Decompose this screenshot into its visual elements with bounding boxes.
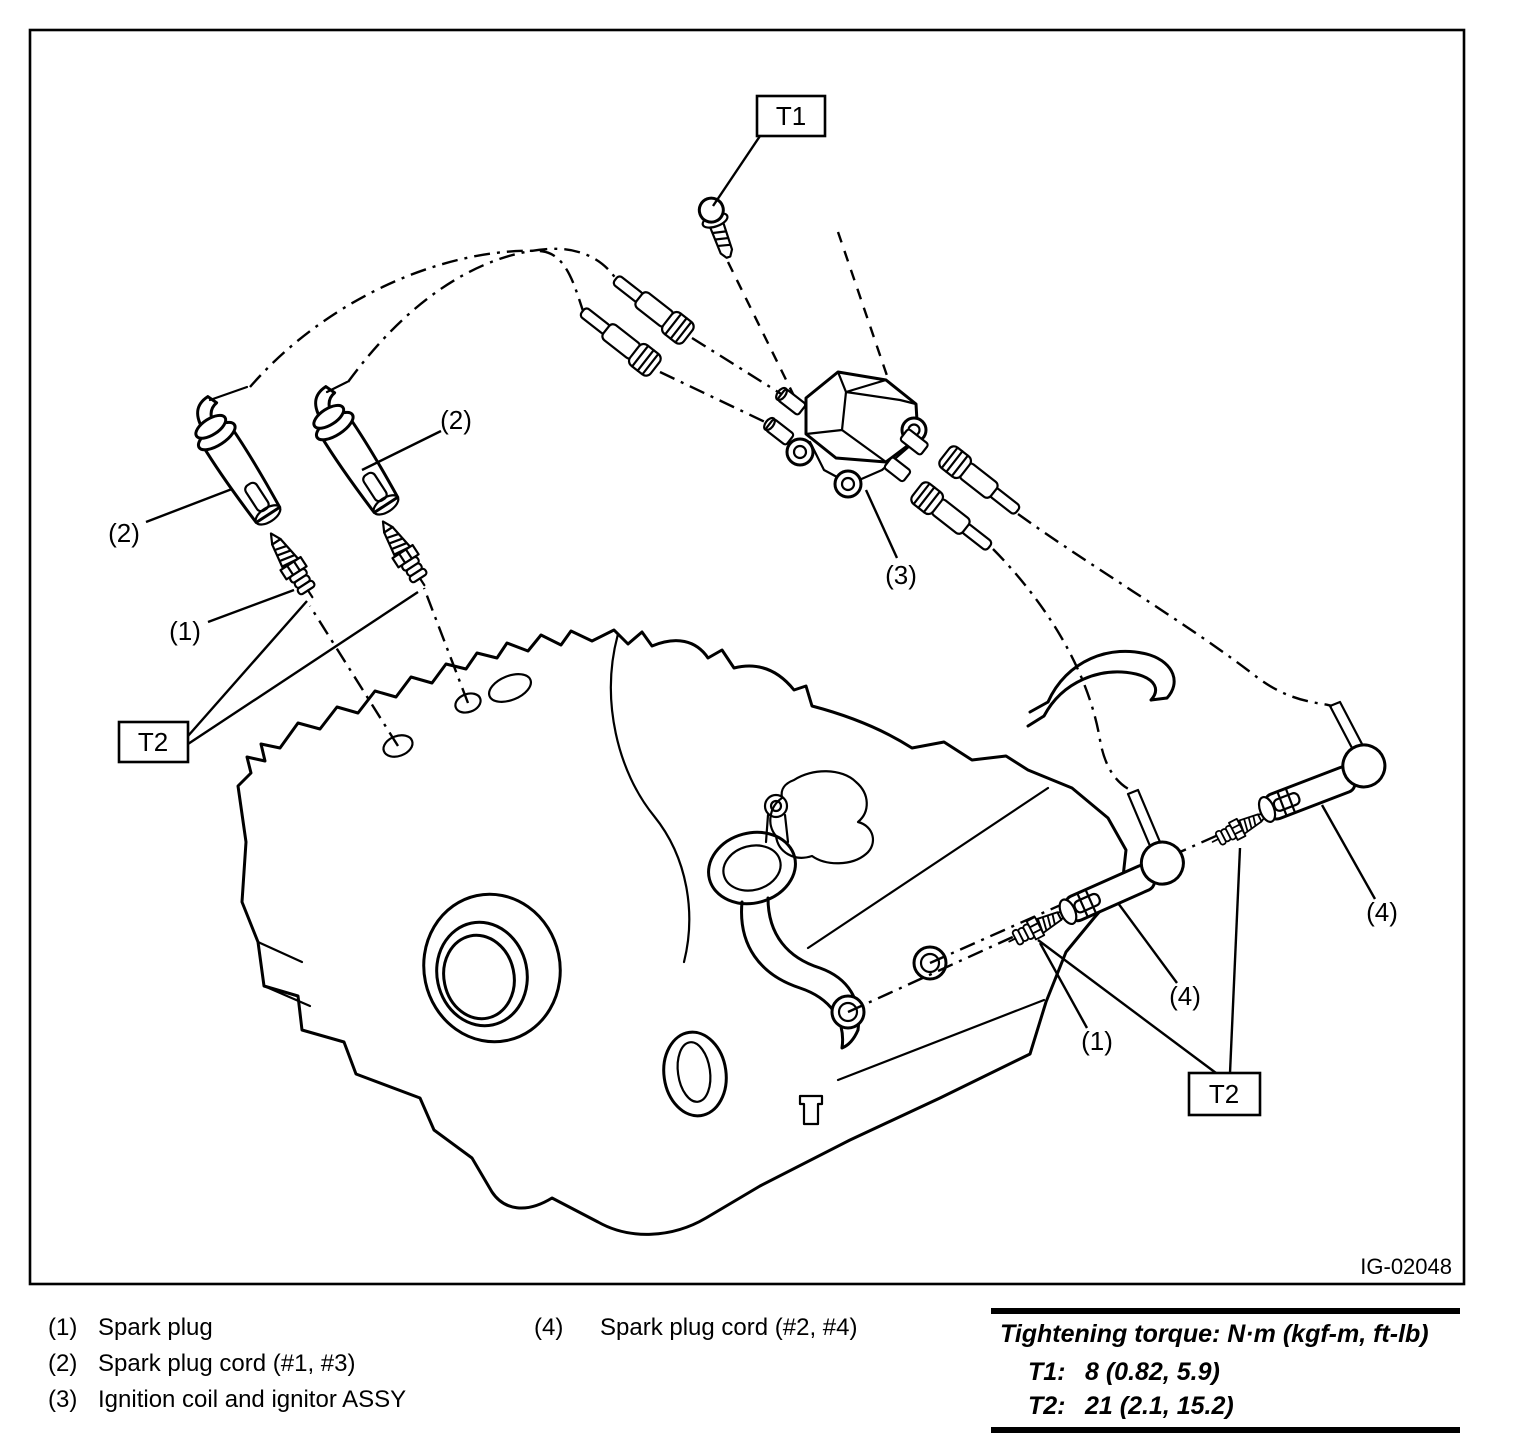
- torque-row-t1-value: 8 (0.82, 5.9): [1085, 1358, 1220, 1386]
- legend-num-2: (2): [48, 1350, 77, 1377]
- callout-n2-left: (2): [108, 518, 140, 548]
- torque-table-title: Tightening torque: N·m (kgf-m, ft-lb): [1000, 1320, 1429, 1348]
- callout-n1-left: (1): [169, 616, 201, 646]
- callout-t2-left: T2: [138, 727, 168, 757]
- ignition-diagram: T1 T2 (1) (2) (2) (3) (1) (4) (4) T2 IG-…: [0, 0, 1536, 1446]
- callout-t2-right: T2: [1209, 1079, 1239, 1109]
- torque-row-t1-key: T1:: [1028, 1358, 1066, 1386]
- legend: (1) Spark plug (2) Spark plug cord (#1, …: [48, 1314, 857, 1413]
- torque-row-t2-key: T2:: [1028, 1392, 1066, 1420]
- manual-page: T1 T2 (1) (2) (2) (3) (1) (4) (4) T2 IG-…: [0, 0, 1536, 1446]
- legend-num-3: (3): [48, 1386, 77, 1413]
- figure-id: IG-02048: [1360, 1254, 1452, 1279]
- callout-n4-right: (4): [1366, 897, 1398, 927]
- legend-label-1: Spark plug: [98, 1314, 213, 1341]
- legend-label-3: Ignition coil and ignitor ASSY: [98, 1386, 406, 1413]
- torque-row-t2-value: 21 (2.1, 15.2): [1084, 1392, 1234, 1420]
- legend-label-2: Spark plug cord (#1, #3): [98, 1350, 355, 1377]
- legend-label-4: Spark plug cord (#2, #4): [600, 1314, 857, 1341]
- callout-n4-mid: (4): [1169, 981, 1201, 1011]
- callout-n1-right: (1): [1081, 1026, 1113, 1056]
- callout-n3: (3): [885, 560, 917, 590]
- callout-t1: T1: [776, 101, 806, 131]
- legend-num-1: (1): [48, 1314, 77, 1341]
- torque-table: Tightening torque: N·m (kgf-m, ft-lb) T1…: [991, 1311, 1460, 1430]
- legend-num-4: (4): [534, 1314, 563, 1341]
- callout-n2-right: (2): [440, 405, 472, 435]
